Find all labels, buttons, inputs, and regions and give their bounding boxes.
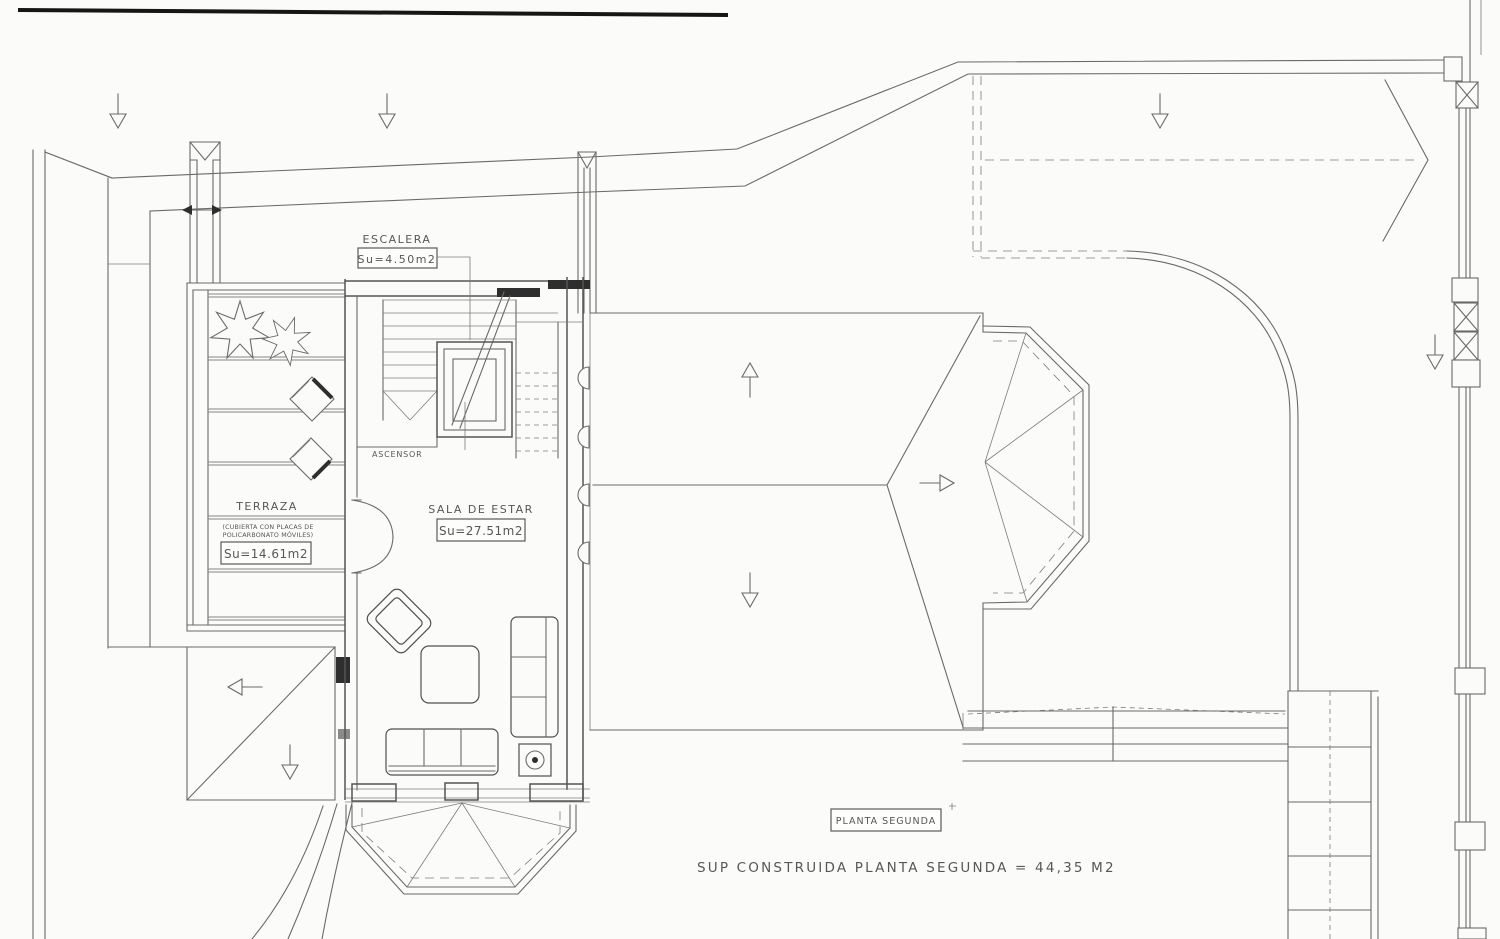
slope-arrow-down-icon	[379, 94, 395, 128]
coffee-table-icon	[421, 646, 479, 703]
escalera-label: ESCALERA	[363, 233, 432, 246]
chaise-icon	[511, 617, 558, 737]
main-roof	[590, 313, 983, 730]
terraza-note-line2: POLICARBONATO MÓVILES)	[223, 530, 313, 539]
site-dashed-lines	[973, 76, 1428, 691]
fence-right	[1427, 57, 1486, 939]
slope-arrow-up-icon	[742, 363, 758, 397]
direction-chevron-icon	[1383, 80, 1428, 241]
sofa-icon	[386, 729, 498, 775]
plan-title: PLANTA SEGUNDA	[836, 816, 937, 827]
fence-post-x-icon	[1456, 82, 1478, 108]
wall-window-dark	[338, 729, 350, 739]
side-table-icon	[519, 744, 551, 776]
terraza: TERRAZA (CUBIERTA CON PLACAS DE POLICARB…	[187, 283, 345, 631]
terrace-table-icon	[290, 377, 334, 421]
double-door-icon	[352, 500, 393, 573]
terraza-area-value: Su=14.61m2	[224, 547, 308, 561]
titles: PLANTA SEGUNDA SUP CONSTRUIDA PLANTA SEG…	[697, 803, 1116, 876]
plant-icon	[211, 301, 318, 369]
armchair-icon	[364, 586, 433, 655]
slope-arrow-down-icon	[1427, 335, 1443, 369]
stairwell: ASCENSOR ESCALERA Su=4.50m2	[357, 233, 583, 459]
terrace-table-icon	[290, 438, 332, 480]
floor-plan-drawing: TERRAZA (CUBIERTA CON PLACAS DE POLICARB…	[0, 0, 1500, 939]
dimension-arrow-icon	[182, 205, 222, 215]
garden-path	[252, 803, 352, 939]
sala-area-value: Su=27.51m2	[439, 524, 523, 538]
terraza-label: TERRAZA	[235, 500, 298, 513]
scan-artifacts	[18, 0, 1481, 939]
ascensor-label: ASCENSOR	[372, 450, 423, 459]
bay-roof-bottom	[346, 803, 576, 894]
escalera-area-value: Su=4.50m2	[358, 253, 437, 266]
built-area-summary: SUP CONSTRUIDA PLANTA SEGUNDA = 44,35 M2	[697, 860, 1116, 876]
slope-arrow-down-icon	[110, 94, 126, 128]
slope-arrow-down-icon	[742, 573, 758, 607]
roof-square-left	[108, 647, 350, 800]
slope-arrows-top	[110, 94, 1168, 128]
sala-de-estar: SALA DE ESTAR Su=27.51m2	[364, 503, 558, 776]
fence-post-x-icon	[1454, 303, 1478, 331]
walkway	[963, 707, 1288, 761]
turret-roof	[983, 326, 1089, 609]
pergola-grid	[1288, 691, 1378, 939]
chimney-left	[182, 142, 222, 283]
sala-label: SALA DE ESTAR	[428, 503, 534, 516]
wall-window-dark	[336, 657, 350, 683]
fence-post-x-icon	[1454, 332, 1478, 360]
slope-arrow-right-icon	[920, 475, 954, 491]
terraza-note-line1: (CUBIERTA CON PLACAS DE	[222, 524, 313, 531]
slope-arrow-down-icon	[1152, 94, 1168, 128]
slope-arrow-left-icon	[228, 679, 262, 695]
slope-arrow-down-icon	[282, 745, 298, 779]
elevator	[437, 342, 512, 450]
floor-plan-scan: TERRAZA (CUBIERTA CON PLACAS DE POLICARB…	[0, 0, 1500, 939]
